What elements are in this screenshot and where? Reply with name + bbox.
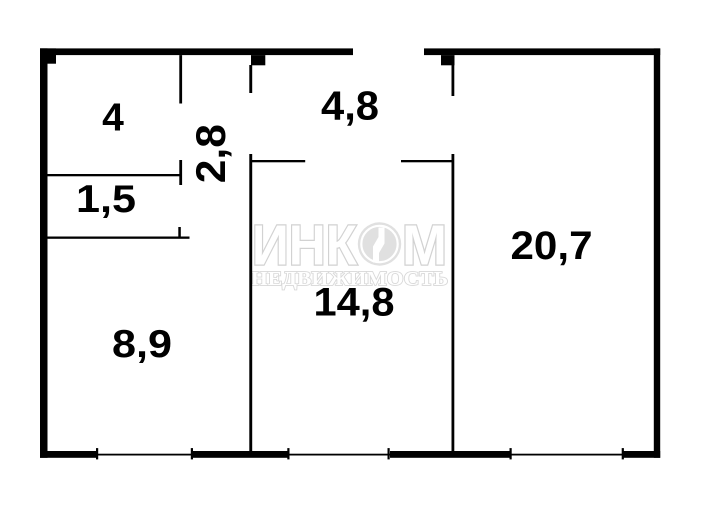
svg-text:20,7: 20,7: [511, 224, 593, 268]
svg-text:2,8: 2,8: [187, 124, 234, 183]
svg-text:4,8: 4,8: [321, 83, 379, 129]
svg-text:1,5: 1,5: [76, 178, 136, 221]
svg-text:14,8: 14,8: [314, 281, 395, 325]
svg-text:4: 4: [102, 97, 124, 140]
svg-text:8,9: 8,9: [112, 323, 172, 366]
